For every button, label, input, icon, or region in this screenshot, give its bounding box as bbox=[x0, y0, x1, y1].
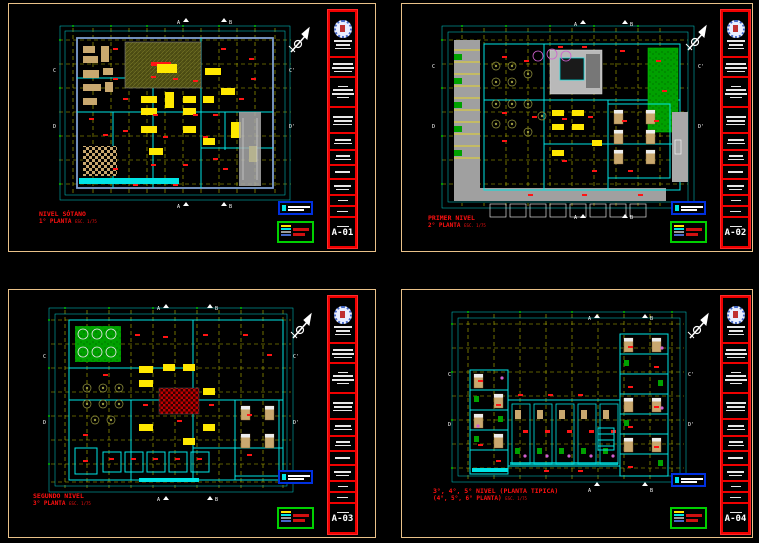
location-key-box bbox=[278, 201, 313, 215]
titleblock-cell bbox=[330, 78, 355, 106]
section-marker: A bbox=[157, 497, 160, 502]
plan-scale: ESC. 1/75 bbox=[464, 223, 486, 228]
section-marker: A bbox=[588, 316, 591, 322]
section-marker: D' bbox=[289, 124, 295, 130]
titleblock: A-02 bbox=[720, 9, 751, 249]
titleblock-cell bbox=[330, 466, 355, 480]
titleblock-cell bbox=[723, 207, 748, 216]
section-marker: B bbox=[229, 204, 232, 210]
sheet-a03: A B A B C D C' D' SEGUNDO NIVEL 3° PLANT… bbox=[8, 289, 376, 538]
university-seal-logo bbox=[727, 20, 745, 38]
plan-caption: SEGUNDO NIVEL 3° PLANTA ESC. 1/75 bbox=[33, 492, 91, 508]
sheet-number: A-03 bbox=[332, 515, 354, 524]
titleblock-cell bbox=[330, 482, 355, 491]
section-marker: D bbox=[43, 420, 46, 426]
location-key-text bbox=[681, 478, 703, 483]
location-key-box bbox=[671, 473, 706, 487]
titleblock-cell bbox=[330, 108, 355, 132]
location-key-box bbox=[278, 470, 313, 484]
location-key-icon bbox=[675, 477, 679, 483]
location-key-text bbox=[288, 206, 310, 211]
section-marker: B bbox=[229, 20, 232, 26]
titleblock-cell bbox=[723, 493, 748, 502]
section-marker: A bbox=[157, 306, 160, 312]
finish-legend-box bbox=[670, 221, 707, 243]
titleblock: A-03 bbox=[327, 295, 358, 535]
titleblock-cell bbox=[330, 180, 355, 194]
plan-title: 3°, 4°, 5° NIVEL (PLANTA TIPICA) bbox=[433, 487, 558, 495]
plan-scale: ESC. 1/75 bbox=[75, 219, 97, 224]
section-marker: D bbox=[448, 422, 451, 428]
titleblock-cell bbox=[723, 108, 748, 132]
section-marker: B bbox=[215, 497, 218, 502]
section-marker: C bbox=[432, 64, 435, 70]
checker-floor bbox=[83, 146, 117, 176]
north-arrow-icon bbox=[289, 312, 315, 342]
titleblock-cell bbox=[330, 452, 355, 464]
sheet-a01: A B A B C D C' D' NIVEL SÓTANO 1° PLANTA… bbox=[8, 3, 376, 252]
location-key-icon bbox=[282, 474, 286, 480]
plan-caption: 3°, 4°, 5° NIVEL (PLANTA TIPICA) (4°, 5°… bbox=[433, 487, 558, 503]
titleblock-cell bbox=[330, 420, 355, 435]
section-marker: C' bbox=[289, 68, 295, 74]
legend-color-keys bbox=[281, 511, 291, 525]
titleblock-cell bbox=[723, 452, 748, 464]
plan-level: 2° PLANTA bbox=[428, 222, 461, 229]
section-marker: C' bbox=[688, 372, 694, 378]
titleblock-logo-cell bbox=[330, 298, 355, 342]
finish-legend-box bbox=[277, 221, 314, 243]
titleblock-cell bbox=[723, 394, 748, 418]
ramp-area bbox=[239, 112, 261, 186]
titleblock-cell bbox=[723, 437, 748, 450]
legend-color-keys bbox=[281, 225, 291, 239]
titleblock-cell bbox=[723, 482, 748, 491]
section-marker: D bbox=[53, 124, 56, 130]
legend-color-keys bbox=[674, 225, 684, 239]
titleblock-cell bbox=[723, 364, 748, 392]
legend-text bbox=[293, 225, 310, 239]
finish-legend-box bbox=[670, 507, 707, 529]
university-seal-logo bbox=[727, 306, 745, 324]
plan-caption: NIVEL SÓTANO 1° PLANTA ESC. 1/75 bbox=[39, 210, 97, 226]
floor-plan-first-level: A B A B C D C' D' bbox=[432, 20, 708, 220]
section-marker: C bbox=[448, 372, 451, 378]
plan-subtitle: 1° PLANTA ESC. 1/75 bbox=[39, 218, 97, 226]
titleblock-cell bbox=[723, 78, 748, 106]
plan-caption: PRIMER NIVEL 2° PLANTA ESC. 1/75 bbox=[428, 214, 486, 230]
beds bbox=[241, 406, 274, 448]
section-marker: C bbox=[43, 354, 46, 360]
cyan-strip bbox=[139, 478, 199, 482]
beds bbox=[474, 338, 661, 452]
side-driveway bbox=[672, 112, 688, 182]
titleblock-logo-cell bbox=[723, 298, 748, 342]
plan-title: PRIMER NIVEL bbox=[428, 214, 486, 222]
sheet-number-cell: A-01 bbox=[330, 218, 355, 246]
dining-tables bbox=[492, 62, 546, 136]
titleblock-logo-cell bbox=[723, 12, 748, 56]
plan-scale: ESC. 1/75 bbox=[505, 496, 527, 501]
floor-plan-second-level: A B A B C D C' D' bbox=[43, 304, 301, 502]
section-marker: A bbox=[574, 22, 577, 28]
plan-subtitle: 2° PLANTA ESC. 1/75 bbox=[428, 222, 486, 230]
location-key-icon bbox=[282, 205, 286, 211]
legend-color-keys bbox=[674, 511, 684, 525]
floor-plan-typical-level: A B A B C D C' D' bbox=[448, 308, 698, 494]
sheet-a04: A B A B C D C' D' 3°, 4°, 5° NIVEL (PLAN… bbox=[401, 289, 753, 538]
parking-stalls bbox=[490, 204, 646, 217]
magenta-fixtures bbox=[476, 346, 663, 427]
north-arrow-icon bbox=[684, 24, 710, 54]
university-seal-logo bbox=[334, 306, 352, 324]
location-key-text bbox=[288, 475, 310, 480]
pool-strip bbox=[79, 178, 179, 184]
stage-block bbox=[560, 58, 584, 80]
north-arrow-icon bbox=[287, 26, 313, 56]
gray-block bbox=[586, 54, 600, 88]
titleblock-cell bbox=[330, 196, 355, 205]
titleblock-cell bbox=[330, 437, 355, 450]
section-marker: B bbox=[650, 316, 653, 322]
titleblock-cell bbox=[330, 58, 355, 76]
plan-scale: ESC. 1/75 bbox=[69, 501, 91, 506]
location-key-box bbox=[671, 201, 706, 215]
titleblock-cell bbox=[330, 364, 355, 392]
plan-title: SEGUNDO NIVEL bbox=[33, 492, 91, 500]
section-marker: D bbox=[432, 124, 435, 130]
legend-text bbox=[686, 225, 703, 239]
yellow-fixtures bbox=[552, 110, 602, 156]
north-arrow-icon bbox=[686, 312, 712, 342]
location-key-text bbox=[681, 206, 703, 211]
driveway bbox=[454, 40, 480, 190]
location-key-icon bbox=[675, 205, 679, 211]
titleblock-cell bbox=[723, 180, 748, 194]
plan-title: NIVEL SÓTANO bbox=[39, 210, 97, 218]
section-marker: B bbox=[630, 215, 633, 220]
finish-legend-box bbox=[277, 507, 314, 529]
dining-tables bbox=[83, 384, 123, 424]
section-marker: A bbox=[588, 488, 591, 494]
titleblock-cell bbox=[330, 134, 355, 149]
sheet-number-cell: A-04 bbox=[723, 504, 748, 532]
floor-plan-basement: A B A B C D C' D' bbox=[53, 18, 297, 210]
section-marker: C' bbox=[698, 64, 704, 70]
section-marker: A bbox=[177, 204, 180, 210]
plan-level: (4°, 5°, 6° PLANTA) bbox=[433, 495, 502, 502]
sheet-number-cell: A-02 bbox=[723, 218, 748, 246]
university-seal-logo bbox=[334, 20, 352, 38]
sheet-number: A-01 bbox=[332, 229, 354, 238]
titleblock-cell bbox=[723, 466, 748, 480]
titleblock-cell bbox=[330, 394, 355, 418]
section-marker: D' bbox=[698, 124, 704, 130]
titleblock-cell bbox=[723, 134, 748, 149]
titleblock-cell bbox=[723, 58, 748, 76]
section-marker: D' bbox=[688, 422, 694, 428]
titleblock: A-04 bbox=[720, 295, 751, 535]
wood-furniture bbox=[83, 46, 113, 105]
section-marker: B bbox=[650, 488, 653, 494]
titleblock-cell bbox=[723, 344, 748, 362]
plan-subtitle: 3° PLANTA ESC. 1/75 bbox=[33, 500, 91, 508]
titleblock-cell bbox=[723, 166, 748, 178]
corridor-strip bbox=[510, 462, 618, 465]
titleblock-logo-cell bbox=[330, 12, 355, 56]
plan-level: 1° PLANTA bbox=[39, 218, 72, 225]
sheet-number: A-04 bbox=[725, 515, 747, 524]
gym-equipment-area bbox=[159, 388, 199, 414]
titleblock-cell bbox=[330, 151, 355, 164]
section-marker: A bbox=[574, 215, 577, 220]
titleblock-cell bbox=[723, 196, 748, 205]
legend-text bbox=[686, 511, 703, 525]
titleblock-cell bbox=[330, 344, 355, 362]
titleblock-cell bbox=[330, 493, 355, 502]
titleblock-cell bbox=[330, 166, 355, 178]
section-marker: B bbox=[215, 306, 218, 312]
section-marker: B bbox=[630, 22, 633, 28]
legend-text bbox=[293, 511, 310, 525]
sheet-a02: A B A B C D C' D' PRIMER NIVEL 2° PLANTA… bbox=[401, 3, 753, 252]
section-marker: A bbox=[177, 20, 180, 26]
titleblock: A-01 bbox=[327, 9, 358, 249]
sheet-number: A-02 bbox=[725, 229, 747, 238]
section-marker: D' bbox=[293, 420, 299, 426]
section-marker: C bbox=[53, 68, 56, 74]
cad-drawing-canvas: A B A B C D C' D' NIVEL SÓTANO 1° PLANTA… bbox=[0, 0, 759, 543]
section-marker: C' bbox=[293, 354, 299, 360]
cyan-strip bbox=[472, 468, 508, 472]
plan-level: 3° PLANTA bbox=[33, 500, 66, 507]
beds bbox=[614, 110, 655, 164]
titleblock-cell bbox=[723, 151, 748, 164]
titleblock-cell bbox=[330, 207, 355, 216]
plan-subtitle: (4°, 5°, 6° PLANTA) ESC. 1/75 bbox=[433, 495, 558, 503]
sheet-number-cell: A-03 bbox=[330, 504, 355, 532]
titleblock-cell bbox=[723, 420, 748, 435]
